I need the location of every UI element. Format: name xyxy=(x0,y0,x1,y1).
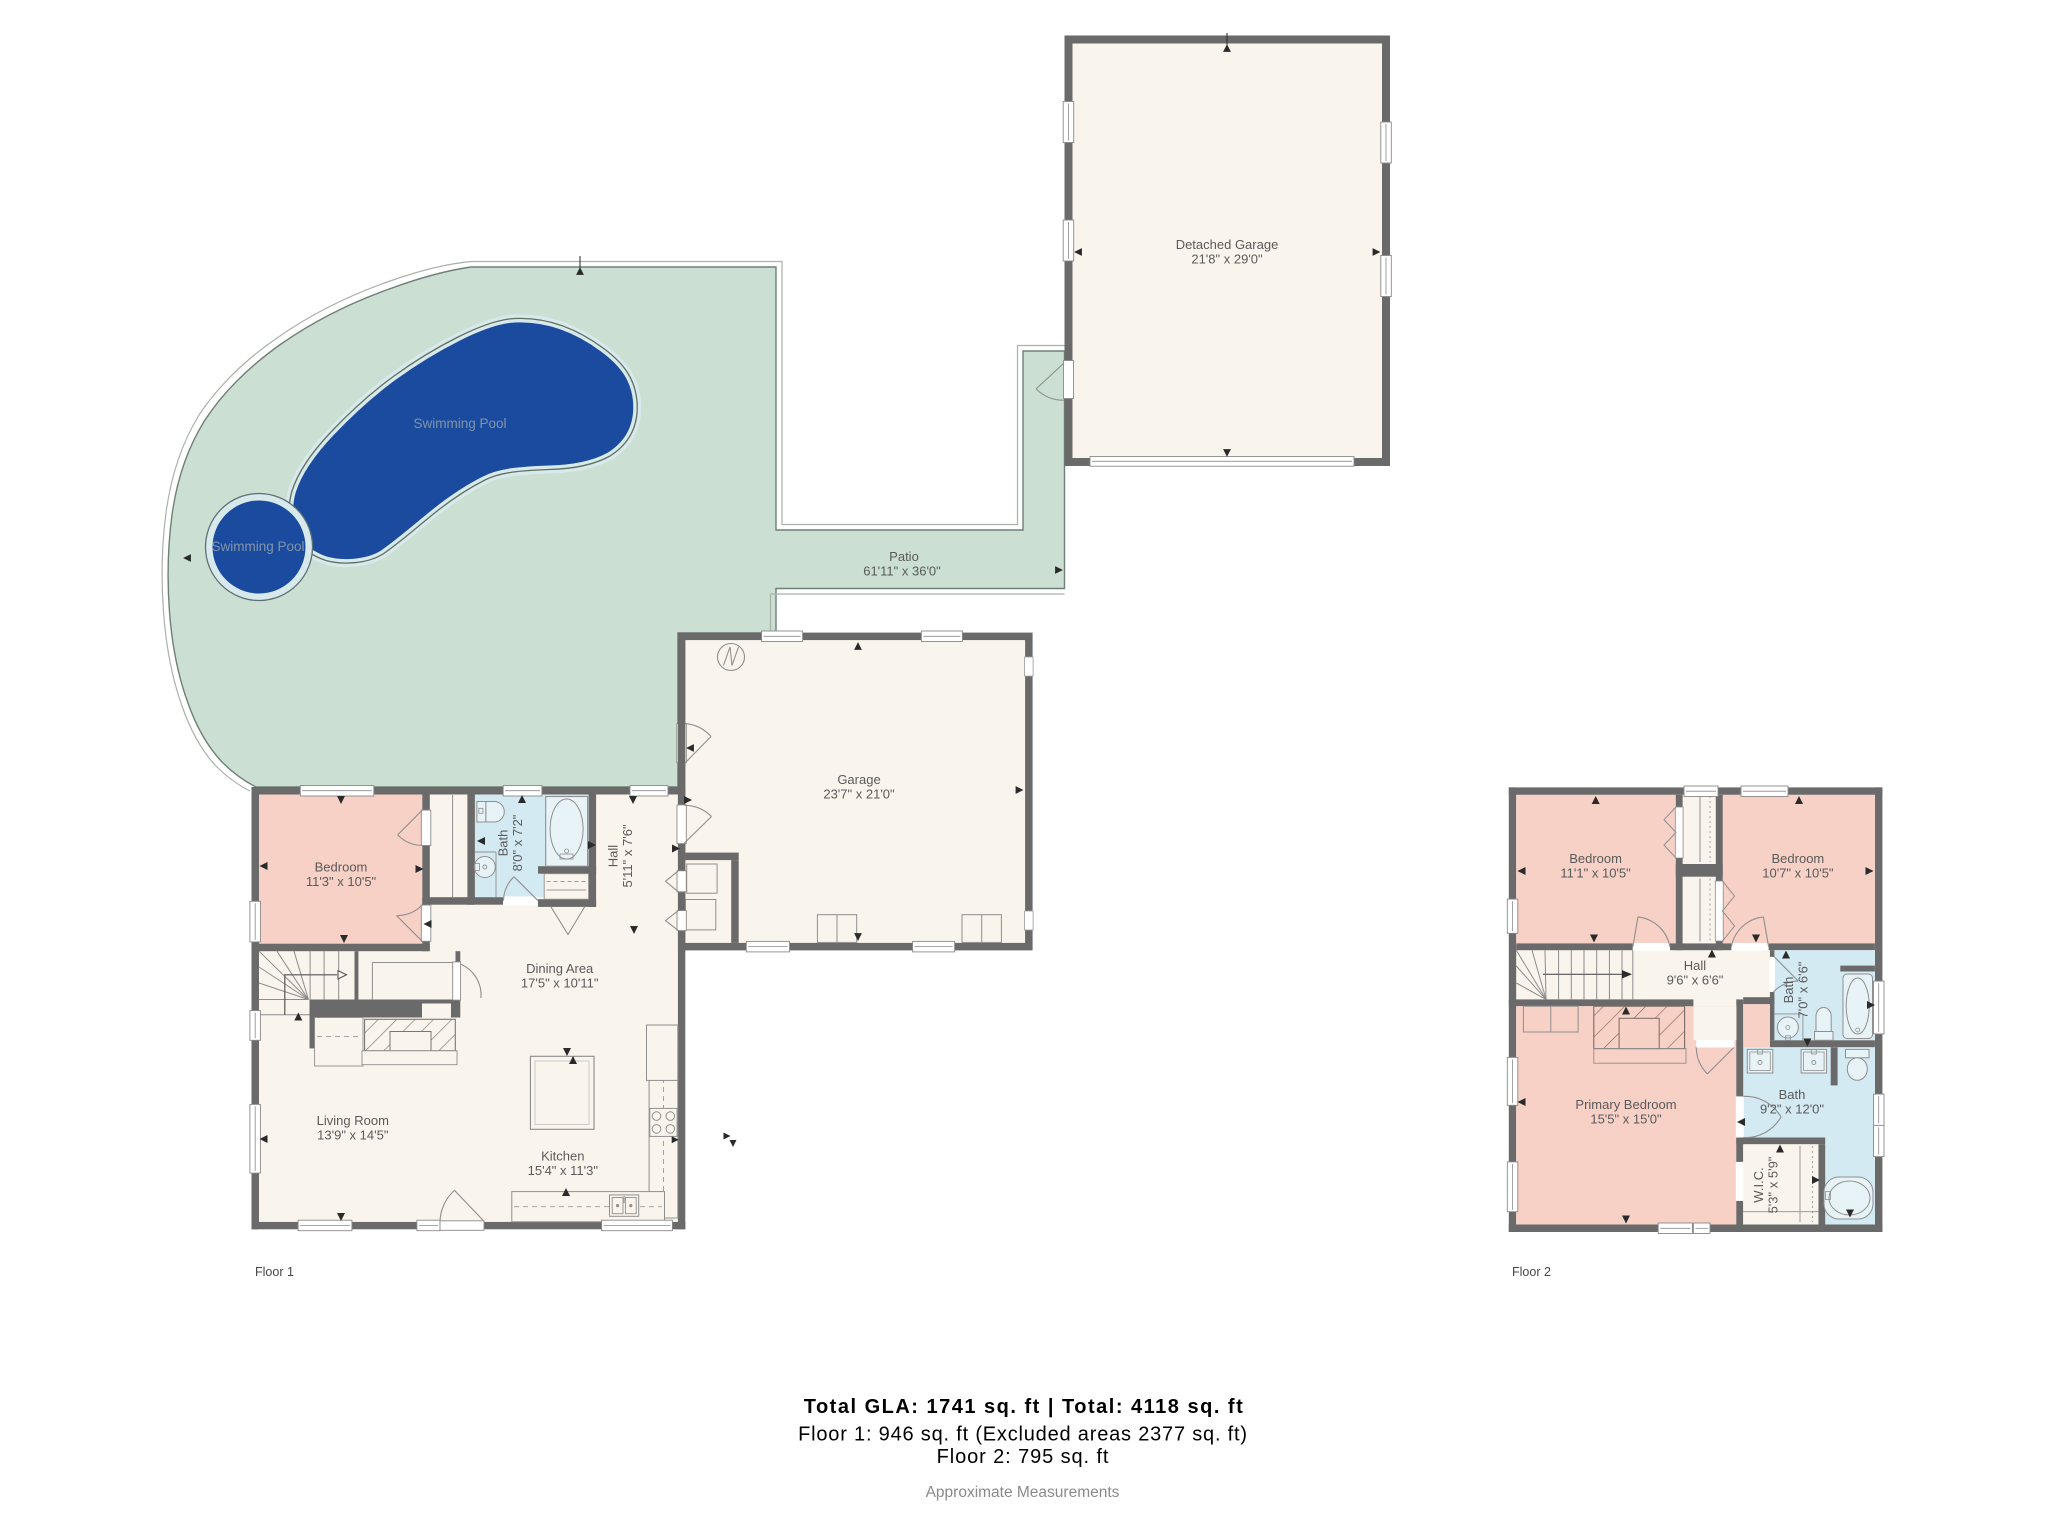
svg-text:Swimming Pool: Swimming Pool xyxy=(413,416,506,431)
svg-text:Floor 2: Floor 2 xyxy=(1512,1265,1551,1279)
svg-text:Bedroom: Bedroom xyxy=(315,860,368,875)
svg-text:Dining Area: Dining Area xyxy=(526,961,594,976)
svg-text:Hall: Hall xyxy=(1684,958,1707,973)
svg-text:61'11" x 36'0": 61'11" x 36'0" xyxy=(863,564,941,579)
svg-text:5'11" x 7'6": 5'11" x 7'6" xyxy=(620,824,635,887)
svg-text:Living Room: Living Room xyxy=(317,1113,389,1128)
svg-text:Primary Bedroom: Primary Bedroom xyxy=(1575,1097,1676,1112)
svg-text:9'6" x 6'6": 9'6" x 6'6" xyxy=(1667,973,1724,988)
svg-text:10'7" x 10'5": 10'7" x 10'5" xyxy=(1762,866,1834,881)
svg-text:W.I.C.: W.I.C. xyxy=(1751,1167,1766,1202)
svg-text:Floor 1: 946 sq. ft (Excluded: Floor 1: 946 sq. ft (Excluded areas 2377… xyxy=(798,1424,1248,1446)
svg-text:Kitchen: Kitchen xyxy=(541,1149,584,1164)
svg-text:11'1" x 10'5": 11'1" x 10'5" xyxy=(1560,866,1631,881)
svg-text:21'8" x 29'0": 21'8" x 29'0" xyxy=(1191,252,1263,267)
svg-text:Total GLA: 1741 sq. ft | Total: Total GLA: 1741 sq. ft | Total: 4118 sq.… xyxy=(804,1396,1245,1418)
svg-text:Bedroom: Bedroom xyxy=(1569,851,1622,866)
svg-text:Approximate Measurements: Approximate Measurements xyxy=(926,1484,1120,1501)
svg-text:Detached Garage: Detached Garage xyxy=(1176,237,1279,252)
svg-text:Garage: Garage xyxy=(837,772,880,787)
svg-text:15'5" x 15'0": 15'5" x 15'0" xyxy=(1590,1112,1662,1127)
svg-text:Floor 2: 795 sq. ft: Floor 2: 795 sq. ft xyxy=(937,1446,1110,1468)
svg-text:23'7" x 21'0": 23'7" x 21'0" xyxy=(823,787,895,802)
svg-text:8'0" x 7'2": 8'0" x 7'2" xyxy=(510,814,525,871)
svg-text:15'4" x 11'3": 15'4" x 11'3" xyxy=(528,1163,599,1178)
svg-text:9'2" x 12'0": 9'2" x 12'0" xyxy=(1760,1102,1824,1117)
svg-text:11'3" x 10'5": 11'3" x 10'5" xyxy=(306,874,377,889)
svg-text:Patio: Patio xyxy=(889,549,919,564)
svg-text:Bath: Bath xyxy=(496,830,511,857)
svg-text:13'9" x 14'5": 13'9" x 14'5" xyxy=(317,1128,389,1143)
svg-text:Bath: Bath xyxy=(1779,1087,1806,1102)
svg-text:7'0" x 6'6": 7'0" x 6'6" xyxy=(1796,961,1811,1018)
svg-text:Bedroom: Bedroom xyxy=(1772,851,1825,866)
svg-text:Bath: Bath xyxy=(1781,977,1796,1004)
svg-text:17'5" x 10'11": 17'5" x 10'11" xyxy=(521,976,599,991)
svg-text:Swimming Pool: Swimming Pool xyxy=(211,539,304,554)
svg-text:Floor 1: Floor 1 xyxy=(255,1265,294,1279)
svg-text:Hall: Hall xyxy=(606,845,621,868)
svg-text:5'3" x 5'9": 5'3" x 5'9" xyxy=(1766,1156,1781,1213)
